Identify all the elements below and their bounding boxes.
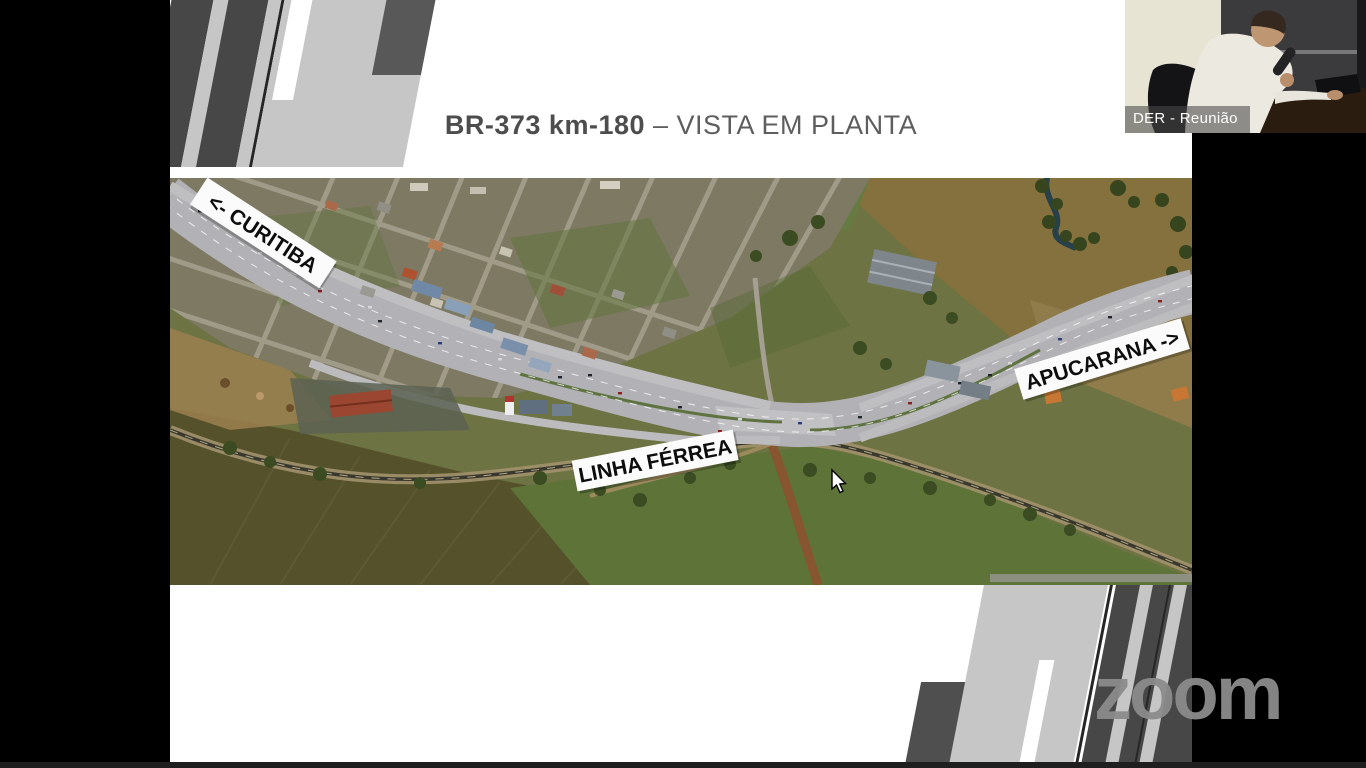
slide-title: BR-373 km-180 – VISTA EM PLANTA [170, 110, 1192, 141]
meeting-screen: BR-373 km-180 – VISTA EM PLANTA [0, 0, 1366, 768]
slide-corner-decoration-top-left [170, 0, 462, 167]
bottom-letterbox-bar [0, 762, 1366, 768]
shared-slide: BR-373 km-180 – VISTA EM PLANTA [170, 0, 1192, 762]
zoom-watermark: zoom [1094, 656, 1280, 732]
slide-title-highlight: BR-373 km-180 [445, 110, 645, 140]
hand-on-mouse [1327, 90, 1343, 100]
webcam-video-tile[interactable]: DER - Reunião [1125, 0, 1366, 133]
site-plan-map: <- CURITIBA APUCARANA -> LINHA FÉRREA [170, 178, 1192, 585]
slide-title-rest: – VISTA EM PLANTA [645, 110, 917, 140]
site-plan-graphic: <- CURITIBA APUCARANA -> LINHA FÉRREA [170, 178, 1192, 585]
participant-name-label: DER - Reunião [1125, 106, 1250, 133]
